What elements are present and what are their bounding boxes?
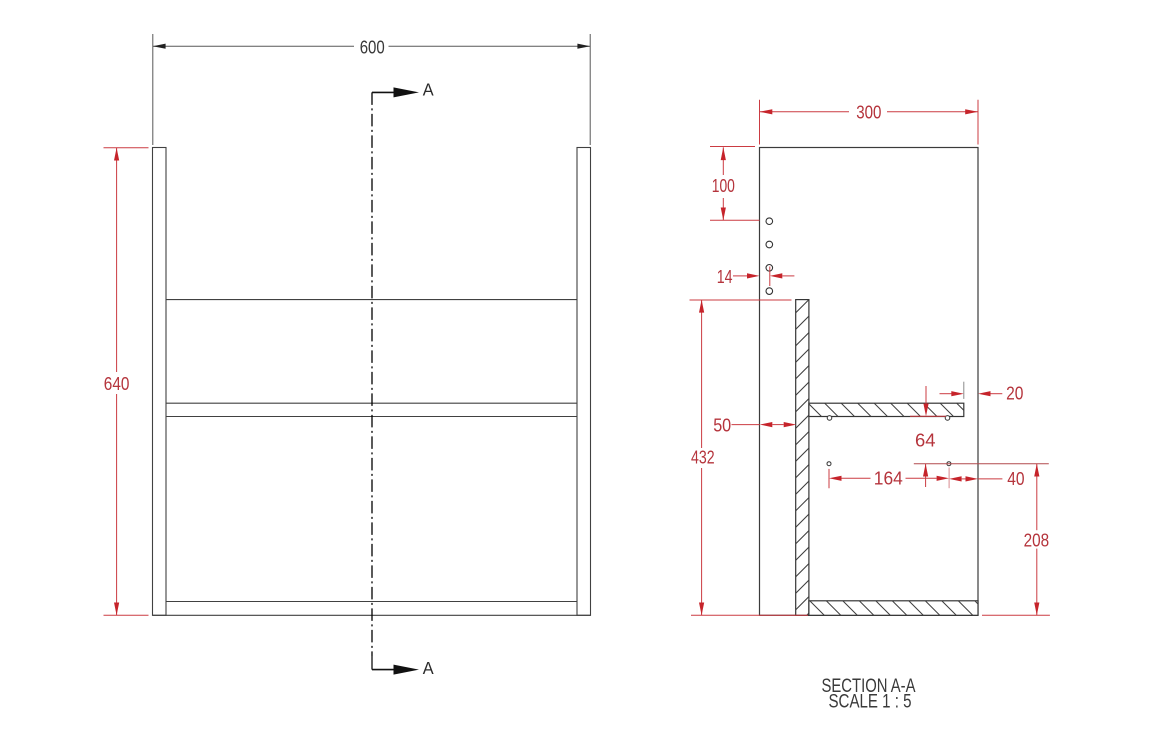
svg-text:164: 164	[874, 469, 903, 489]
svg-text:432: 432	[691, 448, 715, 468]
svg-text:40: 40	[1007, 469, 1024, 489]
svg-text:640: 640	[104, 374, 130, 394]
svg-text:A: A	[423, 658, 434, 678]
svg-text:50: 50	[713, 416, 731, 436]
svg-text:A: A	[423, 79, 434, 99]
svg-text:SCALE 1 : 5: SCALE 1 : 5	[829, 691, 912, 712]
svg-text:64: 64	[915, 430, 936, 450]
svg-text:20: 20	[1006, 384, 1023, 404]
svg-text:600: 600	[360, 38, 385, 58]
svg-text:300: 300	[856, 103, 881, 123]
svg-text:100: 100	[712, 176, 735, 196]
svg-text:14: 14	[717, 267, 733, 287]
svg-text:208: 208	[1024, 530, 1050, 550]
